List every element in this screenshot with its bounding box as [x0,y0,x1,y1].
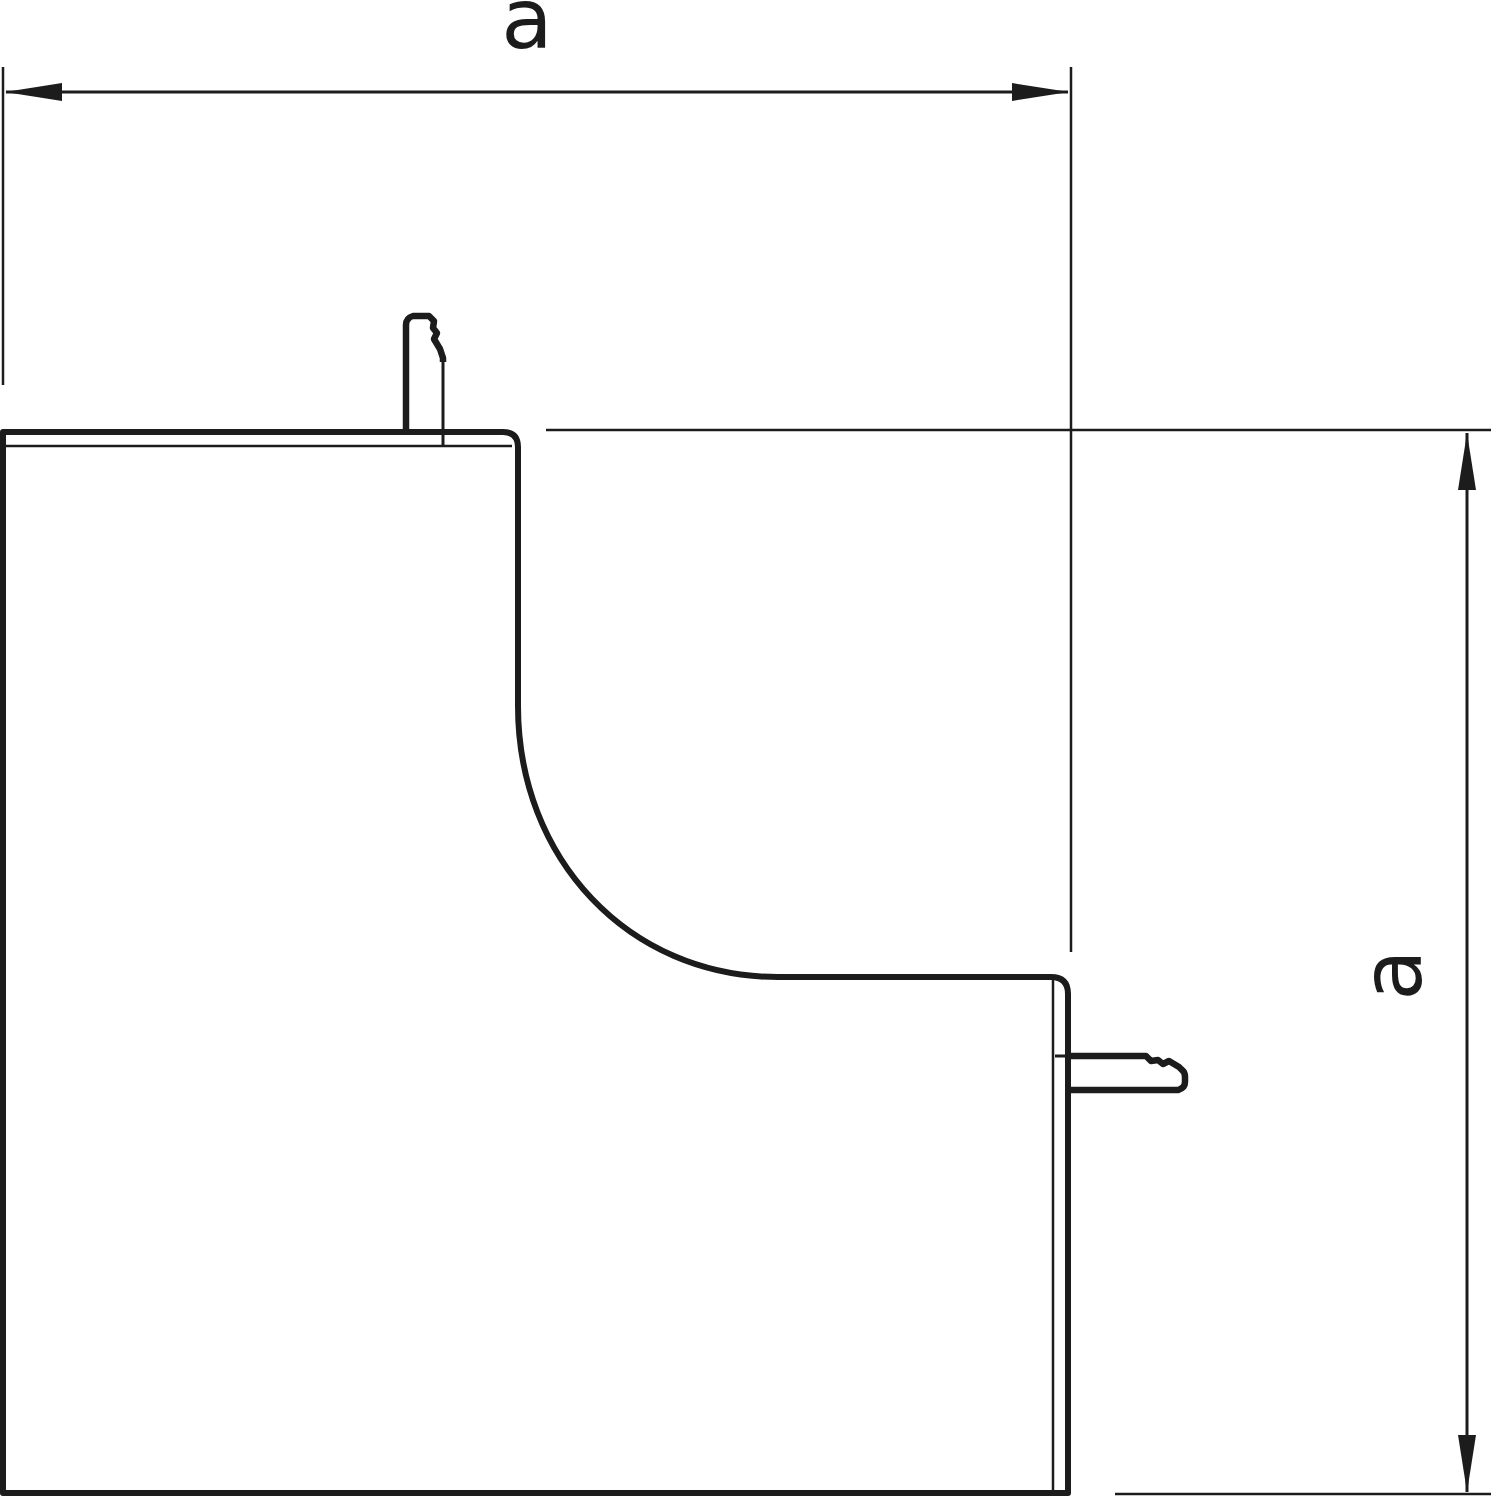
corner-piece-outline [3,432,1068,1493]
right-clip-contour [1069,1056,1185,1090]
dimension-label-vertical: a [1343,949,1441,1000]
right-clip [1055,1056,1185,1090]
arrow-down-icon [1458,1435,1476,1492]
arrow-right-icon [1012,83,1069,101]
top-clip [406,316,443,446]
arrow-up-icon [1458,433,1476,490]
dimension-label-horizontal: a [501,0,552,68]
arrow-left-icon [5,83,62,101]
top-clip-contour [406,316,443,430]
part-outer-contour [3,432,1068,1493]
drawing-canvas: a a [0,0,1491,1500]
technical-drawing: a a [0,0,1491,1500]
